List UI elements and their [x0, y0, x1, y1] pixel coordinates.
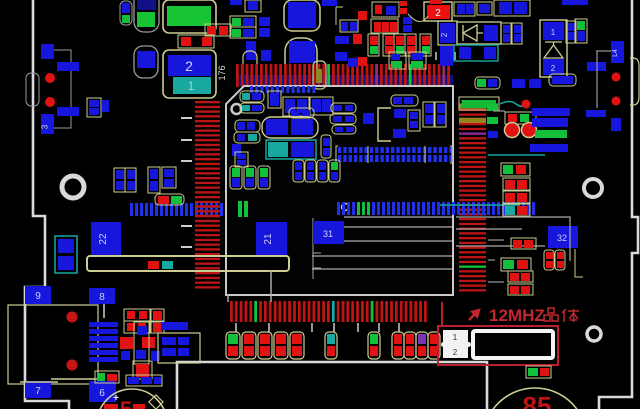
svg-text:+: + [113, 393, 119, 404]
svg-text:1: 1 [551, 28, 556, 37]
svg-text:2: 2 [440, 32, 449, 37]
svg-text:8: 8 [99, 292, 105, 303]
svg-text:85: 85 [523, 391, 552, 409]
svg-text:6: 6 [99, 388, 105, 399]
svg-text:1: 1 [188, 79, 195, 93]
svg-text:7: 7 [35, 386, 41, 397]
svg-text:2: 2 [435, 8, 441, 19]
svg-text:22: 22 [98, 233, 109, 245]
svg-text:21: 21 [263, 233, 274, 245]
svg-text:31: 31 [323, 229, 333, 239]
svg-text:9: 9 [35, 291, 41, 302]
svg-text:12MHZ: 12MHZ [489, 306, 545, 325]
svg-text:2: 2 [551, 64, 556, 73]
svg-text:L4: L4 [612, 49, 619, 57]
svg-text:32: 32 [557, 233, 567, 243]
svg-text:176: 176 [217, 65, 227, 80]
svg-text:1: 1 [453, 333, 458, 342]
svg-text:5: 5 [120, 397, 132, 409]
svg-text:3: 3 [41, 124, 50, 129]
svg-text:2: 2 [453, 348, 458, 357]
svg-text:2: 2 [185, 58, 193, 74]
